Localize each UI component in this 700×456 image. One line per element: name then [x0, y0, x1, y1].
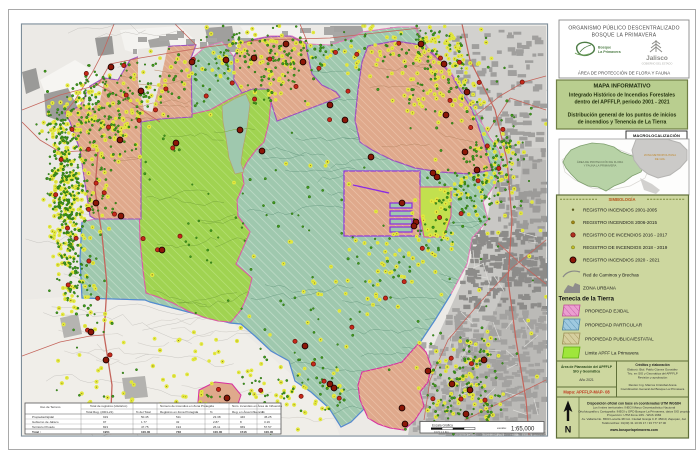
- svg-text:Total de registros (Histórico): Total de registros (Histórico): [90, 404, 127, 408]
- svg-text:45.25: 45.25: [264, 415, 272, 419]
- svg-text:100.00: 100.00: [213, 430, 223, 434]
- svg-text:2.87: 2.87: [213, 420, 219, 424]
- svg-text:Núm. incendios en Área de Infl: Núm. incendios en Área de Influencia: [232, 404, 282, 408]
- svg-text:La Primavera: La Primavera: [598, 50, 622, 54]
- svg-text:Gobierno de Jalisco: Gobierno de Jalisco: [32, 420, 59, 424]
- svg-text:1:65,000: 1:65,000: [511, 427, 535, 433]
- svg-text:100.00: 100.00: [264, 430, 274, 434]
- svg-text:Área de Planeación del APFFLP: Área de Planeación del APFFLP: [561, 364, 613, 369]
- svg-text:PROPIEDAD PARTICULAR: PROPIEDAD PARTICULAR: [585, 323, 643, 328]
- svg-text:Territorio Privado: Territorio Privado: [32, 425, 55, 429]
- svg-text:Uso de Terreno: Uso de Terreno: [40, 405, 61, 409]
- svg-text:57.57: 57.57: [264, 425, 272, 429]
- svg-text:Coordinación General del Bosqu: Coordinación General del Bosque La Prima…: [621, 387, 685, 391]
- svg-text:Limite APFF La Primavera: Limite APFF La Primavera: [585, 351, 639, 356]
- svg-text:SIMBOLOGÍA: SIMBOLOGÍA: [609, 197, 636, 202]
- svg-text:REGISTRO DE INCENDIOS 2018 - 2: REGISTRO DE INCENDIOS 2018 - 2019: [583, 245, 668, 250]
- svg-text:Reg. en Área Influencia: Reg. en Área Influencia: [232, 410, 264, 414]
- svg-text:26.11: 26.11: [213, 425, 221, 429]
- svg-text:ÁREA DE PROTECCIÓN DE FLORA Y: ÁREA DE PROTECCIÓN DE FLORA Y FAUNA: [578, 71, 670, 76]
- svg-text:736: 736: [176, 430, 181, 434]
- svg-text:Total Reg. (2001-21): Total Reg. (2001-21): [86, 410, 113, 414]
- svg-text:Registros en Zona Protegida: Registros en Zona Protegida: [160, 410, 199, 414]
- svg-text:1.77: 1.77: [141, 420, 147, 424]
- svg-text:PROPIEDAD EJIDAL: PROPIEDAD EJIDAL: [585, 309, 629, 314]
- svg-text:DE GDL: DE GDL: [655, 157, 666, 161]
- svg-text:%: %: [210, 410, 213, 414]
- svg-text:969: 969: [240, 425, 245, 429]
- svg-text:BOSQUE LA PRIMAVERA: BOSQUE LA PRIMAVERA: [592, 33, 657, 39]
- svg-text:N: N: [565, 425, 572, 435]
- svg-text:Y FAUNA LA PRIMAVERA: Y FAUNA LA PRIMAVERA: [584, 164, 617, 168]
- svg-text:Red de Caminos y Brechas: Red de Caminos y Brechas: [583, 273, 640, 278]
- svg-text:Revisión y aprobación: Revisión y aprobación: [638, 376, 668, 380]
- svg-text:511: 511: [176, 415, 181, 419]
- svg-text:47.75: 47.75: [141, 425, 149, 429]
- svg-text:97: 97: [103, 420, 107, 424]
- svg-text:23.38: 23.38: [213, 415, 221, 419]
- svg-text:REGISTRO INCENDIOS 2020 - 2021: REGISTRO INCENDIOS 2020 - 2021: [583, 258, 660, 263]
- svg-text:Créditos y elaboración: Créditos y elaboración: [635, 363, 669, 367]
- svg-text:%: %: [262, 410, 265, 414]
- svg-text:Integrado Histórico de Incendi: Integrado Histórico de Incendios Foresta…: [569, 93, 675, 99]
- svg-text:SIG y Geomática: SIG y Geomática: [573, 370, 600, 374]
- svg-text:GOBIERNO DEL ESTADO: GOBIERNO DEL ESTADO: [642, 62, 673, 66]
- svg-text:Jalisco: Jalisco: [646, 55, 668, 62]
- svg-text:50.45: 50.45: [141, 415, 149, 419]
- svg-text:Propiedad Ejidal: Propiedad Ejidal: [32, 415, 54, 419]
- svg-text:Distribución general de los pu: Distribución general de los puntos de in…: [568, 113, 677, 119]
- svg-text:Año 2021: Año 2021: [579, 378, 594, 382]
- svg-text:Total :: Total :: [32, 430, 41, 434]
- svg-text:Mapa: APFFLP-MAP- 08: Mapa: APFFLP-MAP- 08: [563, 390, 610, 395]
- svg-text:dentro del APFFLP, periodo 200: dentro del APFFLP, periodo 2001 - 2021: [574, 100, 669, 106]
- svg-text:Sistema de Coordenadas WGS 198: Sistema de Coordenadas WGS 1984 UTM Zona…: [454, 433, 546, 437]
- svg-text:de incendios y Tenencia de La: de incendios y Tenencia de La Tierra: [578, 120, 667, 126]
- svg-text:REGISTRO DE INCENDIOS 2016 - 2: REGISTRO DE INCENDIOS 2016 - 2017: [583, 233, 668, 238]
- svg-text:MACROLOCALIZACIÓN: MACROLOCALIZACIÓN: [633, 133, 680, 138]
- svg-text:919: 919: [103, 415, 108, 419]
- svg-text:% del Total: % del Total: [136, 410, 151, 414]
- svg-text:32: 32: [176, 420, 180, 424]
- svg-text:Escala Gráfica: Escala Gráfica: [432, 424, 453, 428]
- svg-text:823: 823: [103, 425, 108, 429]
- svg-text:446: 446: [240, 415, 245, 419]
- svg-text:Teléfono/Fax: 01(33) 31 10 09: Teléfono/Fax: 01(33) 31 10 09 17 / 33 77…: [602, 421, 667, 425]
- svg-text:REGISTRO INCENDIOS 2001-2005: REGISTRO INCENDIOS 2001-2005: [583, 208, 657, 213]
- svg-text:1516: 1516: [240, 430, 247, 434]
- svg-text:194: 194: [176, 425, 181, 429]
- svg-text:REGISTRO INCENDIOS 2006-2015: REGISTRO INCENDIOS 2006-2015: [583, 220, 657, 225]
- svg-text:100.00: 100.00: [141, 430, 151, 434]
- svg-text:1951: 1951: [103, 430, 110, 434]
- svg-text:3.19: 3.19: [264, 420, 270, 424]
- svg-text:PROPIEDAD PUBLICA/ESTATAL: PROPIEDAD PUBLICA/ESTATAL: [585, 337, 654, 342]
- svg-text:escala:: escala:: [497, 426, 507, 430]
- svg-text:0 0.5 1 2 Km: 0 0.5 1 2 Km: [434, 430, 449, 434]
- svg-text:www.bosquelaprimavera.com: www.bosquelaprimavera.com: [609, 428, 658, 432]
- svg-text:ORGANISMO PÚBLICO DESCENTRALIZ: ORGANISMO PÚBLICO DESCENTRALIZADO: [568, 25, 679, 32]
- svg-text:Número de incendios en Zona Pr: Número de incendios en Zona Protegida: [160, 404, 214, 408]
- svg-text:Bosque: Bosque: [598, 46, 611, 50]
- svg-text:MAPA INFORMATIVO: MAPA INFORMATIVO: [593, 84, 651, 90]
- svg-text:Tenecia de la Tierra: Tenecia de la Tierra: [559, 297, 615, 303]
- svg-text:ZONA URBANA: ZONA URBANA: [583, 285, 617, 290]
